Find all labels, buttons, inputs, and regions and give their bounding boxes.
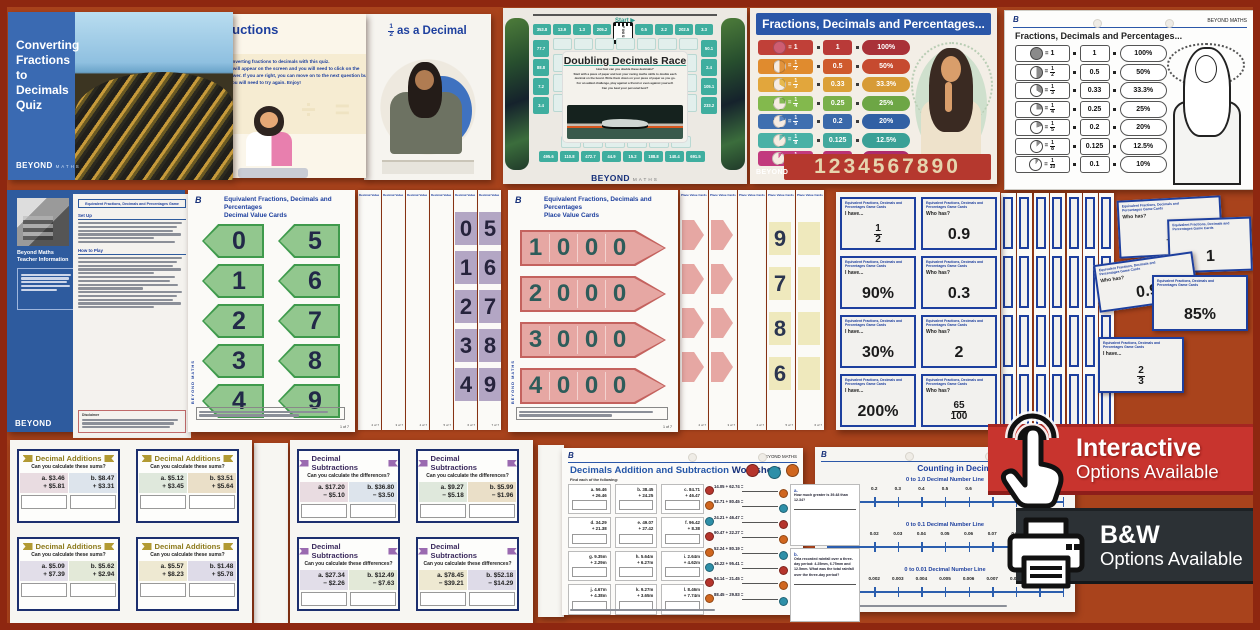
small-circle-icon bbox=[705, 501, 714, 510]
pie-icon bbox=[1030, 84, 1043, 97]
strip-header: Decimal Value Cards bbox=[359, 193, 380, 197]
small-circle-icon bbox=[705, 548, 714, 557]
race-track-left: 77.788.87.23.4 bbox=[533, 40, 549, 114]
game-card-header: Equivalent Fractions, Decimals andPercen… bbox=[1103, 341, 1179, 350]
page-number: 6 of 7 bbox=[814, 423, 822, 427]
page-number: 1 of 7 bbox=[340, 425, 349, 429]
arrow-tip bbox=[682, 352, 704, 382]
tick-label: 0.4 bbox=[918, 486, 924, 491]
game-card-label: Who has? bbox=[926, 211, 992, 217]
game-card-header: Equivalent Fractions, Decimals andPercen… bbox=[1157, 279, 1243, 288]
punch-hole bbox=[905, 452, 914, 461]
text-line bbox=[78, 291, 182, 293]
small-circle-icon bbox=[705, 517, 714, 526]
percent-chip: 100% bbox=[1120, 45, 1168, 62]
text-line bbox=[21, 274, 71, 276]
decimal-chip: 0.33 bbox=[1080, 82, 1110, 99]
equation-row: 90.47 + 22.27 = bbox=[714, 530, 778, 545]
fdp-rows-bw: =11100%=120.550%=130.3333.3%=140.2525%=1… bbox=[1015, 45, 1167, 175]
equation-text: 24.21 + 46.47 = bbox=[714, 515, 778, 520]
fraction-chip: =15 bbox=[1015, 119, 1070, 136]
percent-chip: 50% bbox=[1120, 64, 1168, 81]
tick-mark bbox=[945, 497, 946, 507]
tick-mark bbox=[921, 542, 922, 552]
small-circle-icon bbox=[779, 535, 788, 544]
text-line bbox=[78, 268, 181, 270]
fraction-chip: =13 bbox=[1015, 82, 1070, 99]
purple-digit-card: 8 bbox=[479, 329, 501, 362]
answer-line bbox=[742, 522, 778, 523]
text-line bbox=[21, 289, 57, 291]
text-line bbox=[21, 281, 67, 283]
answer-box bbox=[572, 534, 607, 544]
equals-dot bbox=[817, 46, 820, 49]
card-banner: Decimal Subtractions bbox=[299, 454, 398, 472]
instruction-line: is wrong, you will need to try again. En… bbox=[232, 80, 366, 87]
game-card: Equivalent Fractions, Decimals andPercen… bbox=[921, 315, 997, 368]
slide-half-as-decimal: 12as a Decimal bbox=[364, 14, 491, 180]
text-line bbox=[78, 226, 177, 228]
answers-row bbox=[299, 590, 398, 606]
equals-dot bbox=[856, 120, 859, 123]
text-line bbox=[78, 233, 181, 235]
game-card-header: Equivalent Fractions, Decimals andPercen… bbox=[845, 201, 911, 210]
operation-card: Decimal AdditionsCan you calculate these… bbox=[17, 449, 120, 523]
card-edge bbox=[1052, 256, 1062, 308]
tick-mark bbox=[898, 497, 899, 507]
equals-dot bbox=[1073, 126, 1076, 129]
equals-dot bbox=[1113, 71, 1116, 74]
answer-line bbox=[742, 583, 778, 584]
problems-row: a. $5.12+ $3.45b. $3.51+ $5.64 bbox=[138, 473, 237, 493]
race-cell: 495.6 bbox=[539, 151, 558, 162]
equals-dot bbox=[1073, 52, 1076, 55]
sidebar-contents-box bbox=[17, 268, 77, 310]
problem-b: b. $3.51+ $5.64 bbox=[188, 473, 236, 493]
back-page: Place Value Cards5 of 79786 bbox=[767, 190, 795, 430]
pie-icon bbox=[1030, 47, 1043, 60]
purple-digit-card: 7 bbox=[479, 290, 501, 323]
slide-quiz-title: Converting Fractions to Decimals Quiz BE… bbox=[8, 12, 233, 180]
race-cell: 0.5 bbox=[635, 24, 653, 35]
ribbon-left-icon bbox=[418, 460, 428, 467]
equation-row: 92.71 + 80.45 = bbox=[714, 499, 778, 514]
operation-card: Decimal SubtractionsCan you calculate th… bbox=[416, 449, 519, 523]
fdp-row: =140.2525% bbox=[758, 95, 910, 112]
card-edge bbox=[1085, 374, 1095, 426]
tap-hand-icon bbox=[992, 408, 1072, 508]
race-cell: 188.8 bbox=[644, 151, 663, 162]
decimal-subtractions-sheet: Decimal SubtractionsCan you calculate th… bbox=[290, 440, 533, 625]
decimal-chip: 0.125 bbox=[1080, 138, 1110, 155]
race-cell: 3.4 bbox=[533, 97, 549, 114]
game-card-label: I have... bbox=[845, 388, 911, 394]
equals-dot bbox=[1073, 108, 1076, 111]
fdp-rows: =11100%=120.550%=130.3333.3%=140.2525%=1… bbox=[758, 39, 910, 169]
game-card-label: Who has? bbox=[926, 270, 992, 276]
card-edge bbox=[1052, 197, 1062, 249]
text-line bbox=[82, 426, 170, 428]
answer-box bbox=[665, 500, 700, 510]
worksheet-problem-grid: a. 56.46+ 26.46b. 38.45+ 24.25c. 84.71+ … bbox=[568, 484, 704, 615]
fdp-row: =180.12512.5% bbox=[1015, 138, 1167, 155]
equation-text: 90.47 + 22.27 = bbox=[714, 530, 778, 535]
ribbon-left-icon bbox=[142, 455, 152, 462]
pie-icon bbox=[1030, 103, 1043, 116]
back-page: Place Value Cards6 of 7 bbox=[796, 190, 824, 430]
strip-header: Decimal Value Cards bbox=[383, 193, 404, 197]
answer-box bbox=[420, 592, 466, 606]
arrow-tip bbox=[682, 308, 704, 338]
tick-label: 0.06 bbox=[964, 531, 973, 536]
decimal-chip: 0.2 bbox=[823, 114, 852, 129]
background-digits: 1234567890 bbox=[784, 154, 991, 180]
fdp-title: Fractions, Decimals and Percentages... bbox=[756, 13, 991, 35]
fraction: 12 bbox=[874, 224, 882, 245]
page-number: 7 of 7 bbox=[491, 423, 499, 427]
tick-mark bbox=[898, 542, 899, 552]
problem-a: a. $27.34− $2.26 bbox=[300, 570, 348, 590]
game-card-label: Who has? bbox=[926, 329, 992, 335]
fdp-row: =180.12512.5% bbox=[758, 132, 910, 149]
small-circle-icon bbox=[779, 597, 788, 606]
game-card-value: 65100 bbox=[923, 399, 995, 425]
problem-a: a. $5.12+ $3.45 bbox=[139, 473, 187, 493]
ribbon-left-icon bbox=[299, 548, 309, 555]
slide-instructions: Instructions Practise converting fractio… bbox=[232, 14, 366, 178]
card-banner: Decimal Additions bbox=[138, 454, 237, 463]
b-logo: B bbox=[195, 195, 202, 205]
back-page: Place Value Cards4 of 7 bbox=[738, 190, 766, 430]
interactive-sublabel: Options Available bbox=[1076, 461, 1219, 483]
answers-row bbox=[19, 581, 118, 597]
card-edge bbox=[1019, 256, 1029, 308]
equation-row: 88.45 − 29.83 = bbox=[714, 592, 778, 607]
place-value-cards-title: Equivalent Fractions, Decimals and Perce… bbox=[544, 196, 678, 220]
problems-row: a. $9.27− $5.18b. $5.99− $1.96 bbox=[418, 482, 517, 502]
answer-box bbox=[665, 534, 700, 544]
problems-row: a. $78.45− $39.21b. $52.18− $14.29 bbox=[418, 570, 517, 590]
small-circle-icon bbox=[779, 566, 788, 575]
game-card-header: Equivalent Fractions, Decimals andPercen… bbox=[1172, 221, 1246, 232]
equals-dot bbox=[1113, 145, 1116, 148]
race-car-photo-left bbox=[505, 18, 529, 170]
answer-box bbox=[665, 567, 700, 577]
yellow-digit-column: 9786 bbox=[769, 222, 791, 390]
fraction-one-half: 12 bbox=[388, 24, 394, 38]
tick-mark bbox=[992, 587, 993, 597]
game-card-value: 23 bbox=[1100, 363, 1182, 391]
percent-chip: 33.3% bbox=[862, 77, 910, 92]
problem-b: b. $36.80− $3.50 bbox=[349, 482, 397, 502]
answers-row bbox=[418, 590, 517, 606]
back-page bbox=[1083, 193, 1098, 429]
problem-b: b. $52.18− $14.29 bbox=[468, 570, 516, 590]
answer-line bbox=[742, 599, 778, 600]
thinking-woman-sketch bbox=[1161, 41, 1249, 183]
card-banner: Decimal Additions bbox=[138, 542, 237, 551]
page-number: 6 of 7 bbox=[467, 423, 475, 427]
game-card: Equivalent Fractions, Decimals andPercen… bbox=[921, 256, 997, 309]
game-card: Equivalent Fractions, Decimals andPercen… bbox=[840, 197, 916, 250]
problems-row: a. $17.20− $5.10b. $36.80− $3.50 bbox=[299, 482, 398, 502]
card-prompt: Can you calculate these sums? bbox=[19, 464, 118, 470]
punch-hole bbox=[688, 453, 697, 462]
digit-arrow-card: 6 bbox=[278, 264, 340, 298]
problem-b: b. $12.49− $7.63 bbox=[349, 570, 397, 590]
game-card-header: Equivalent Fractions, Decimals andPercen… bbox=[845, 319, 911, 328]
tick-mark bbox=[969, 542, 970, 552]
race-cell: 50.1 bbox=[701, 40, 717, 57]
answer-box bbox=[70, 583, 116, 597]
race-cell-empty bbox=[616, 38, 635, 50]
equation-row: 52.24 + 80.19 = bbox=[714, 546, 778, 561]
race-cell: 88.8 bbox=[533, 59, 549, 76]
teacher-information-sheet: Beyond Maths Teacher Information Equival… bbox=[7, 190, 185, 432]
answer-box bbox=[140, 495, 186, 509]
disclaimer-heading: Disclaimer bbox=[82, 413, 182, 417]
page-number: 4 of 7 bbox=[756, 423, 764, 427]
problem-b: b. $5.99− $1.96 bbox=[468, 482, 516, 502]
tick-label: 0.04 bbox=[917, 531, 926, 536]
fraction-chip: =1 bbox=[1015, 45, 1070, 62]
card-title: Decimal Additions bbox=[155, 542, 221, 551]
pink-arrow-tips bbox=[682, 220, 704, 382]
yellow-card bbox=[798, 222, 820, 255]
answer-box bbox=[619, 534, 654, 544]
strip-header: Decimal Value Cards bbox=[407, 193, 428, 197]
yellow-card bbox=[798, 267, 820, 300]
b-logo: B bbox=[1013, 15, 1019, 27]
card-banner: Decimal Subtractions bbox=[418, 454, 517, 472]
card-edge bbox=[1085, 197, 1095, 249]
equals-dot bbox=[1073, 163, 1076, 166]
fdp-row: =150.220% bbox=[758, 113, 910, 130]
fraction: 18 bbox=[1050, 141, 1055, 152]
slide3-title: 12as a Decimal bbox=[364, 24, 491, 38]
equals-dot bbox=[856, 83, 859, 86]
tick-mark bbox=[969, 497, 970, 507]
percent-chip: 12.5% bbox=[862, 133, 910, 148]
yellow-digit-card: 7 bbox=[769, 267, 791, 300]
answers-row bbox=[138, 581, 237, 597]
start-bar: Start ▶ bbox=[533, 14, 717, 16]
text-line bbox=[82, 419, 178, 421]
instruction-line: Practise converting fractions to decimal… bbox=[232, 59, 366, 66]
purple-digit-card: 6 bbox=[479, 251, 501, 284]
teal-circle-icon bbox=[768, 466, 781, 479]
race-cell: 205.2 bbox=[593, 24, 611, 35]
text-line bbox=[78, 295, 177, 297]
answer-box bbox=[350, 504, 396, 518]
text-line bbox=[78, 280, 170, 282]
small-circle-icon bbox=[705, 594, 714, 603]
small-circle-icon bbox=[705, 486, 714, 495]
race-cell: 472.7 bbox=[581, 151, 600, 162]
race-title: Doubling Decimals Race bbox=[563, 55, 687, 67]
slide2-title: Instructions bbox=[232, 22, 278, 37]
card-edge bbox=[1069, 315, 1079, 367]
fdp-row: =150.220% bbox=[1015, 119, 1167, 136]
sheet-sliver bbox=[538, 445, 564, 617]
game-card-value: 85% bbox=[1154, 301, 1246, 329]
equals-dot bbox=[856, 65, 859, 68]
teacher-info-panel: Equivalent Fractions, Decimals and Perce… bbox=[73, 194, 191, 438]
race-cell: 2.4 bbox=[701, 59, 717, 76]
card-banner: Decimal Subtractions bbox=[418, 542, 517, 560]
back-page: Place Value Cards3 of 7 bbox=[709, 190, 737, 430]
card-edge bbox=[1036, 197, 1046, 249]
tick-label: 0.002 bbox=[868, 576, 880, 581]
answer-box bbox=[469, 504, 515, 518]
tick-mark bbox=[874, 542, 875, 552]
back-page: Place Value Cards2 of 7 bbox=[680, 190, 708, 430]
decimal-chip: 1 bbox=[1080, 45, 1110, 62]
page-number: 3 of 7 bbox=[727, 423, 735, 427]
problem-b: b. $8.47+ $3.31 bbox=[69, 473, 117, 493]
card-edge bbox=[1052, 315, 1062, 367]
text-line bbox=[78, 302, 181, 304]
percent-chip: 10% bbox=[1120, 156, 1168, 173]
race-cell: 691.5 bbox=[686, 151, 705, 162]
page-number: 5 of 7 bbox=[443, 423, 451, 427]
card-edge bbox=[1003, 197, 1013, 249]
place-value-arrow: 3000 bbox=[520, 322, 666, 358]
equals-dot bbox=[817, 102, 820, 105]
mini-problem: b. 38.45+ 24.25 bbox=[615, 484, 658, 514]
small-circle-icon bbox=[705, 563, 714, 572]
equals-dot bbox=[817, 83, 820, 86]
pie-icon bbox=[773, 41, 786, 54]
decimal-chip: 0.25 bbox=[823, 96, 852, 111]
fraction: 12 bbox=[1050, 67, 1055, 78]
beyond-logo: BEYONDMATHS bbox=[16, 161, 81, 170]
mini-problem: c. 84.71+ 46.47 bbox=[661, 484, 704, 514]
small-circle-icon bbox=[779, 489, 788, 498]
pie-icon bbox=[773, 97, 786, 110]
digit-arrow-card: 1 bbox=[202, 264, 264, 298]
card-edge bbox=[1019, 315, 1029, 367]
game-card-header: Equivalent Fractions, Decimals andPercen… bbox=[926, 260, 992, 269]
back-page: Decimal Value Cards2 of 7 bbox=[358, 190, 381, 430]
b-logo: B bbox=[568, 451, 574, 462]
game-card-header: Equivalent Fractions, Decimals andPercen… bbox=[926, 319, 992, 328]
equals-dot bbox=[1073, 145, 1076, 148]
ribbon-right-icon bbox=[388, 548, 398, 555]
arrow-tip bbox=[711, 220, 733, 250]
disclaimer-box: Disclaimer bbox=[78, 410, 186, 433]
fraction-chip: =12 bbox=[758, 59, 813, 74]
game-card: Equivalent Fractions, Decimals andPercen… bbox=[921, 374, 997, 427]
tick-mark bbox=[945, 587, 946, 597]
pie-icon bbox=[773, 115, 786, 128]
equals-dot bbox=[1113, 126, 1116, 129]
problem-b: b. $1.48+ $5.78 bbox=[188, 561, 236, 581]
answer-box bbox=[21, 495, 67, 509]
problems-row: a. $5.57+ $8.23b. $1.48+ $5.78 bbox=[138, 561, 237, 581]
answer-line bbox=[794, 584, 856, 585]
mini-problem: h. 5.64m+ 6.27m bbox=[615, 551, 658, 581]
writing-student-illustration bbox=[382, 62, 474, 174]
yellow-digit-card: 6 bbox=[769, 357, 791, 390]
game-card-label: I have... bbox=[845, 211, 911, 217]
pie-icon bbox=[773, 60, 786, 73]
answer-box bbox=[619, 567, 654, 577]
mini-problem: f. 96.42+ 8.38 bbox=[661, 517, 704, 547]
digit-arrow-card: 0 bbox=[202, 224, 264, 258]
card-banner: Decimal Subtractions bbox=[299, 542, 398, 560]
tick-mark bbox=[898, 587, 899, 597]
equation-text: 46.22 + 95.41 = bbox=[714, 561, 778, 566]
operation-card: Decimal SubtractionsCan you calculate th… bbox=[416, 537, 519, 611]
race-cell: 44.9 bbox=[602, 151, 621, 162]
digit-arrow-card: 2 bbox=[202, 304, 264, 338]
place-value-arrow: 4000 bbox=[520, 368, 666, 404]
answer-line bbox=[742, 568, 778, 569]
answer-box bbox=[189, 495, 235, 509]
text-line bbox=[78, 222, 182, 224]
strip-header: Place Value Cards bbox=[739, 193, 765, 197]
digit-arrow-card: 5 bbox=[278, 224, 340, 258]
yellow-digit-card: 8 bbox=[769, 312, 791, 345]
equals-dot bbox=[1113, 163, 1116, 166]
equals-dot bbox=[817, 120, 820, 123]
game-card: Equivalent Fractions, Decimals andPercen… bbox=[840, 256, 916, 309]
card-title: Decimal Subtractions bbox=[312, 542, 386, 560]
fdp-row: =120.550% bbox=[758, 58, 910, 75]
fdp-poster-bw: B BEYOND MATHS Fractions, Decimals and P… bbox=[1004, 10, 1256, 190]
page-number: 4 of 7 bbox=[419, 423, 427, 427]
red-circle-icon bbox=[746, 464, 759, 477]
fraction: 14 bbox=[793, 98, 798, 109]
arrow-tip bbox=[711, 264, 733, 294]
game-card-value: 2 bbox=[923, 340, 995, 366]
answers-row bbox=[418, 502, 517, 518]
tick-mark bbox=[945, 542, 946, 552]
card-edge bbox=[1003, 256, 1013, 308]
pie-icon bbox=[1029, 158, 1042, 171]
beyond-logo: BEYOND bbox=[756, 169, 788, 176]
ribbon-right-icon bbox=[104, 543, 114, 550]
race-cell: 1.3 bbox=[573, 24, 591, 35]
beyond-vertical-label: BEYOND MATHS bbox=[510, 360, 515, 404]
teacher-info-sidebar-title: Beyond Maths Teacher Information bbox=[17, 250, 71, 264]
race-cell: 105.1 bbox=[701, 78, 717, 95]
equation-text: 52.24 + 80.19 = bbox=[714, 546, 778, 551]
page-number: 2 of 7 bbox=[698, 423, 706, 427]
race-center-panel: Doubling Decimals Race How fast can you … bbox=[563, 52, 687, 142]
answer-box bbox=[572, 567, 607, 577]
arrow-tip bbox=[682, 220, 704, 250]
pie-icon bbox=[773, 134, 786, 147]
problems-row: a. $27.34− $2.26b. $12.49− $7.63 bbox=[299, 570, 398, 590]
equation-row: 14.05 + 62.74 = bbox=[714, 484, 778, 499]
game-card-label: I have... bbox=[845, 329, 911, 335]
ribbon-right-icon bbox=[388, 460, 398, 467]
tick-label: 0.3 bbox=[895, 486, 901, 491]
tick-mark bbox=[874, 587, 875, 597]
equals-dot bbox=[1113, 52, 1116, 55]
fraction: 13 bbox=[1050, 85, 1055, 96]
back-page: Decimal Value Cards6 of 701234 bbox=[454, 190, 477, 430]
purple-digit-card: 1 bbox=[455, 251, 477, 284]
purple-digit-card: 3 bbox=[455, 329, 477, 362]
purple-digit-card: 2 bbox=[455, 290, 477, 323]
punch-hole bbox=[1165, 19, 1174, 28]
problem-a: a. $5.57+ $8.23 bbox=[139, 561, 187, 581]
answer-box bbox=[619, 500, 654, 510]
strip-header: Place Value Cards bbox=[710, 193, 736, 197]
